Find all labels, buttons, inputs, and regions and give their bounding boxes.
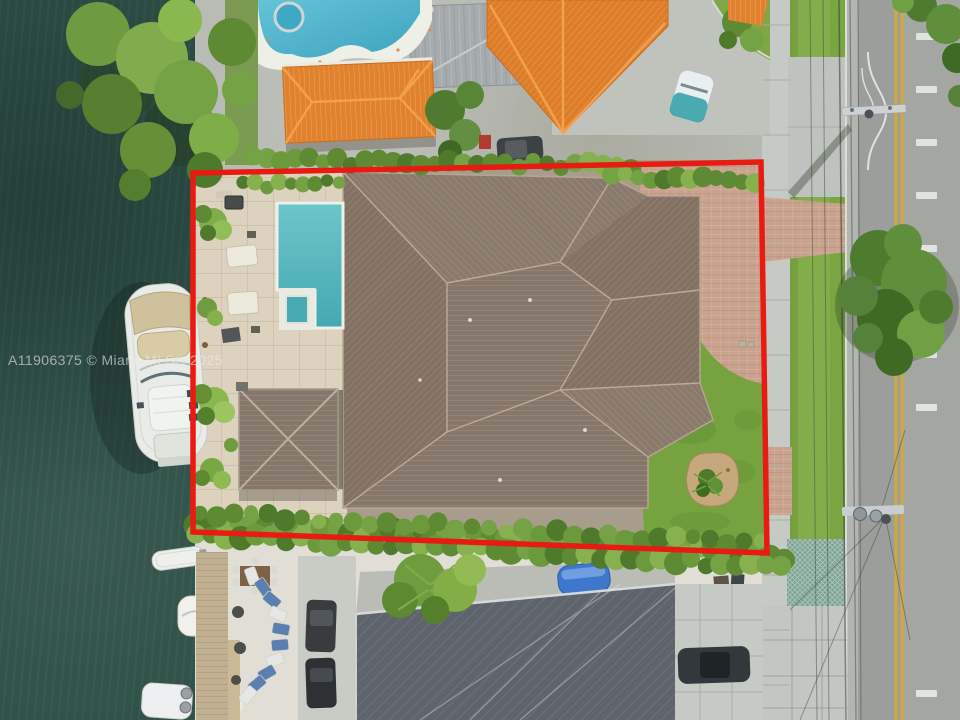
pavilion-roof xyxy=(239,389,343,501)
deck-furniture xyxy=(231,558,290,706)
subject-property xyxy=(192,163,767,555)
aerial-photo: A11906375 © Miami MLS® 2025 xyxy=(0,0,960,720)
north-neighbor xyxy=(225,0,770,165)
south-driveway xyxy=(675,584,763,720)
red-object xyxy=(479,135,491,149)
swimming-pool xyxy=(277,203,343,330)
rock-palm-feature xyxy=(686,453,738,507)
lounger-arc xyxy=(238,566,290,705)
grill xyxy=(221,327,241,343)
driveway-aprons xyxy=(762,57,848,720)
lattice-patio xyxy=(787,539,846,608)
street-tree xyxy=(835,224,959,376)
mls-watermark: A11906375 © Miami MLS® 2025 xyxy=(8,352,223,368)
wood-dock xyxy=(196,552,228,720)
orange-roof-west xyxy=(282,59,436,153)
spa xyxy=(279,288,315,330)
